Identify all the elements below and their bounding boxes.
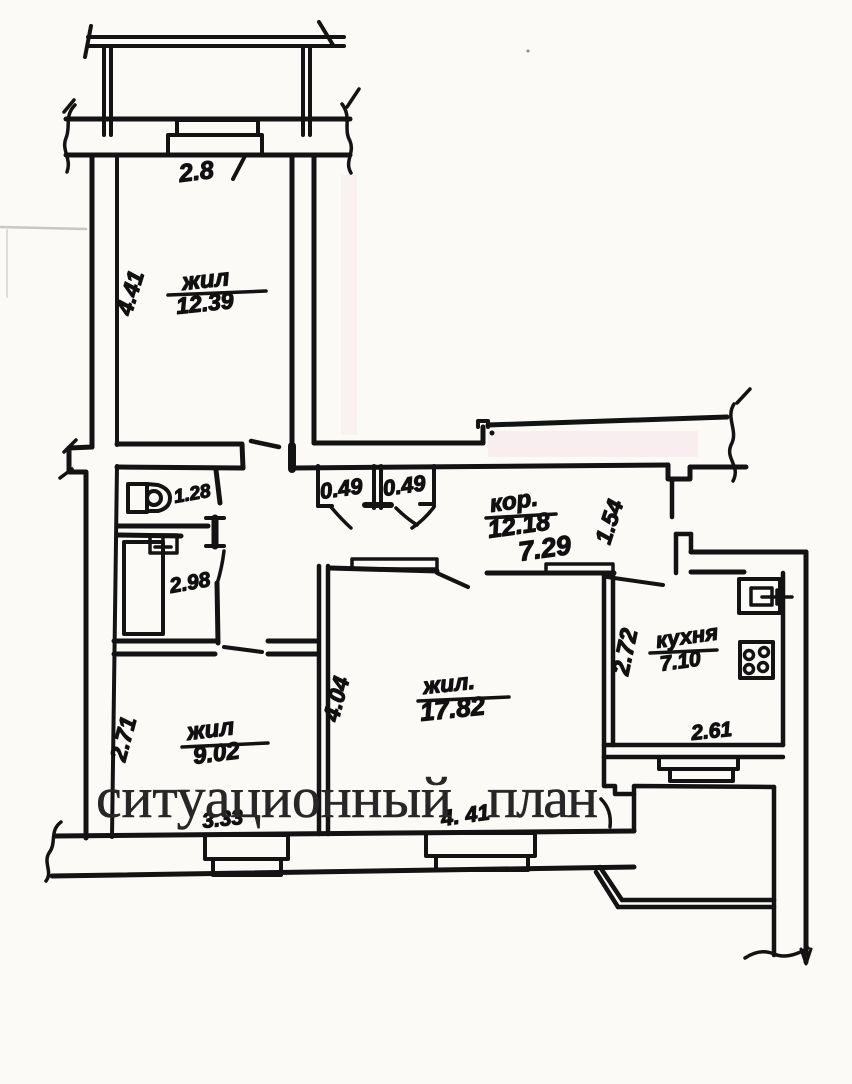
svg-text:7.29: 7.29 (517, 530, 573, 567)
svg-text:ситуационный: ситуационный (96, 765, 452, 830)
svg-text:план: план (487, 765, 598, 830)
svg-text:кухня: кухня (654, 620, 719, 653)
svg-text:12.39: 12.39 (175, 287, 235, 319)
svg-text:2.8: 2.8 (176, 156, 215, 188)
svg-text:0.49: 0.49 (318, 473, 365, 504)
svg-text:7.10: 7.10 (658, 647, 702, 676)
svg-text:0.49: 0.49 (381, 470, 428, 501)
svg-text:2.98: 2.98 (167, 568, 213, 598)
svg-text:2.71: 2.71 (104, 714, 141, 765)
svg-text:2.61: 2.61 (689, 718, 733, 745)
svg-text:1.28: 1.28 (172, 481, 212, 508)
svg-text:4.04: 4.04 (317, 674, 354, 725)
svg-text:17.82: 17.82 (418, 690, 486, 727)
svg-text:1.54: 1.54 (590, 496, 629, 547)
